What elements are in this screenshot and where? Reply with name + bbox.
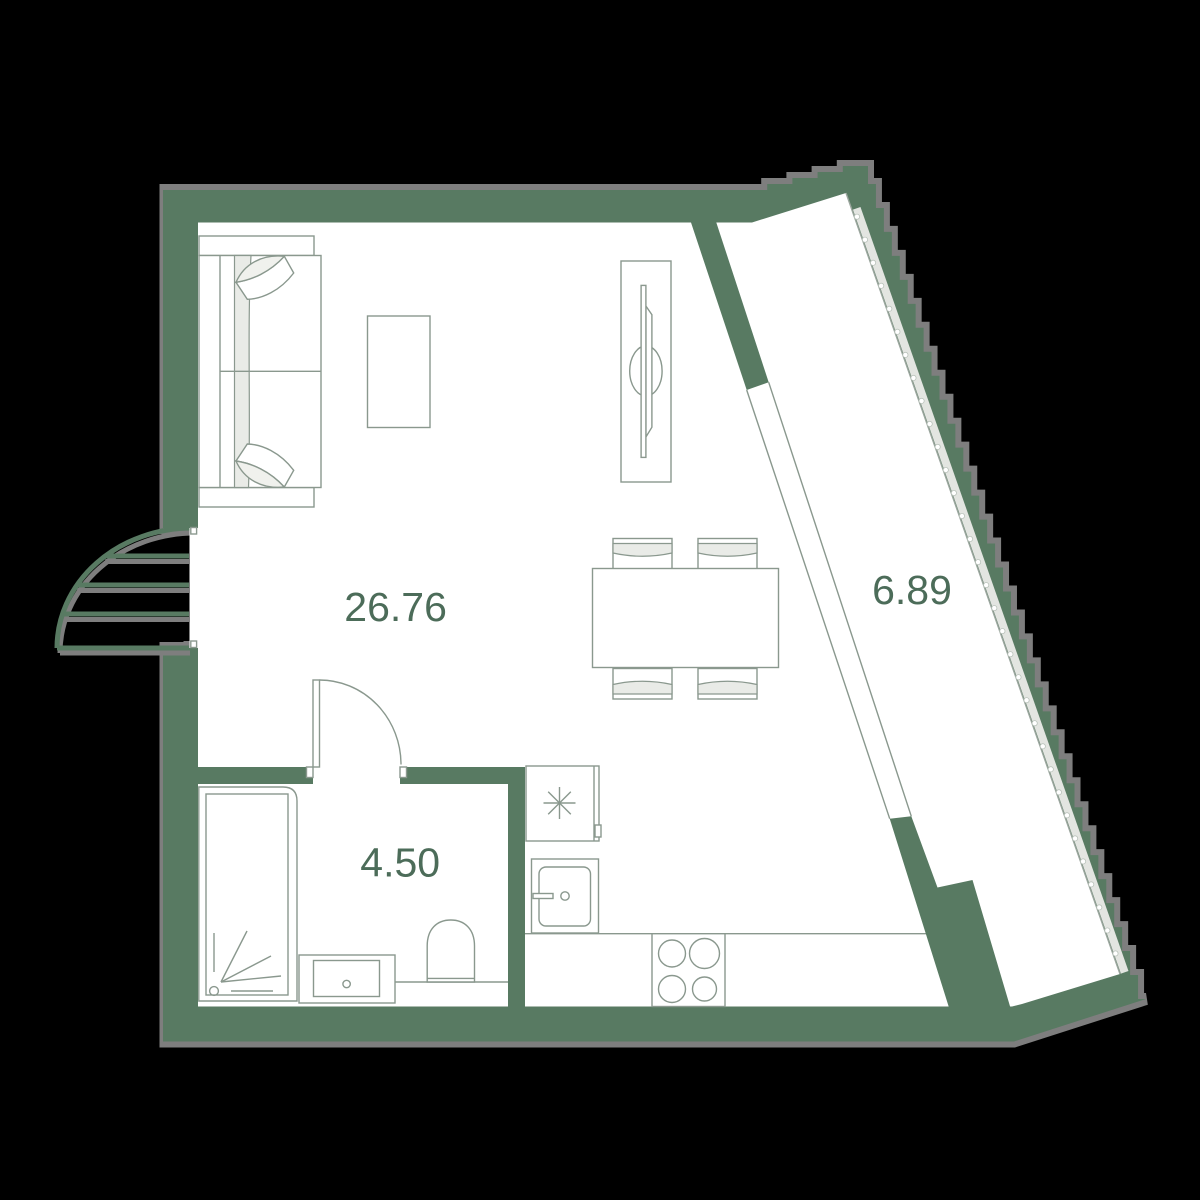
svg-text:26.76: 26.76 (344, 584, 447, 630)
svg-text:4.50: 4.50 (360, 840, 440, 886)
svg-text:6.89: 6.89 (872, 567, 952, 613)
